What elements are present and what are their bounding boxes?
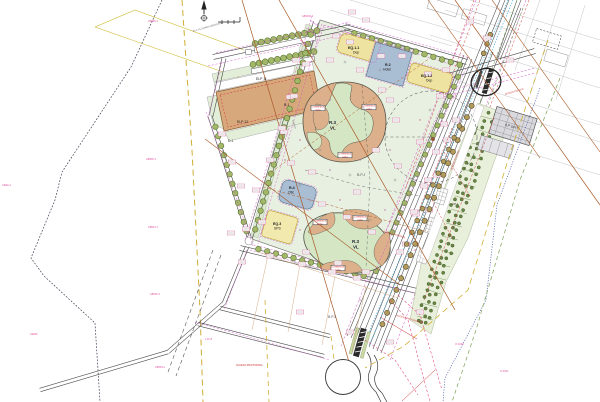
svg-text:COMPATIBLE: COMPATIBLE [312,106,325,109]
svg-text:R.3: R.3 [352,239,360,244]
svg-text:B.P.J: B.P.J [357,173,365,177]
svg-text:VL: VL [353,245,359,250]
svg-text:Dep: Dep [426,79,432,83]
svg-text:R.2: R.2 [385,63,391,67]
svg-text:O.0340: O.0340 [455,342,464,346]
svg-text:Dep: Dep [353,51,359,55]
svg-text:0.4ha: 0.4ha [315,109,321,111]
svg-text:0.4ha: 0.4ha [366,108,372,110]
svg-text:AB500 4: AB500 4 [146,157,157,161]
svg-text:AB503 a: AB503 a [155,365,166,369]
svg-text:COMPATIBLE: COMPATIBLE [354,216,367,219]
svg-text:B.P.3: B.P.3 [328,315,336,319]
svg-text:L.P.14: L.P.14 [205,337,213,341]
svg-text:AB501 4: AB501 4 [148,225,159,229]
svg-text:R.3: R.3 [329,120,337,125]
svg-text:0.4ha: 0.4ha [342,156,348,158]
svg-text:ELP 11: ELP 11 [256,77,267,81]
svg-text:EQ.3: EQ.3 [273,222,281,226]
svg-text:AR90-4: AR90-4 [2,183,11,187]
svg-text:0.4ha: 0.4ha [335,269,341,271]
svg-text:CP.1: CP.1 [452,202,459,206]
svg-text:EQ.1.2: EQ.1.2 [421,74,432,78]
svg-text:COMPATIBLE: COMPATIBLE [339,153,352,156]
svg-text:EQ.1.1: EQ.1.1 [348,46,359,50]
svg-text:Ofic: Ofic [288,191,294,195]
svg-text:R.4: R.4 [289,186,295,190]
svg-text:ELP 12: ELP 12 [237,120,248,124]
svg-text:O.0341: O.0341 [500,369,509,373]
svg-text:SPS: SPS [274,227,282,231]
svg-text:COMPATIBLE: COMPATIBLE [332,266,345,269]
svg-text:B.1: B.1 [284,103,289,107]
svg-text:AB502 4: AB502 4 [150,292,161,296]
svg-text:AB500 4: AB500 4 [148,19,159,23]
svg-text:A9090: A9090 [30,332,38,336]
svg-text:A80000 4: A80000 4 [302,14,314,18]
svg-text:ACCESO PROVISIONAL: ACCESO PROVISIONAL [236,364,264,367]
svg-text:D.1: D.1 [228,139,233,143]
svg-text:0.4ha: 0.4ha [357,219,363,221]
svg-text:Hotel: Hotel [383,68,391,72]
